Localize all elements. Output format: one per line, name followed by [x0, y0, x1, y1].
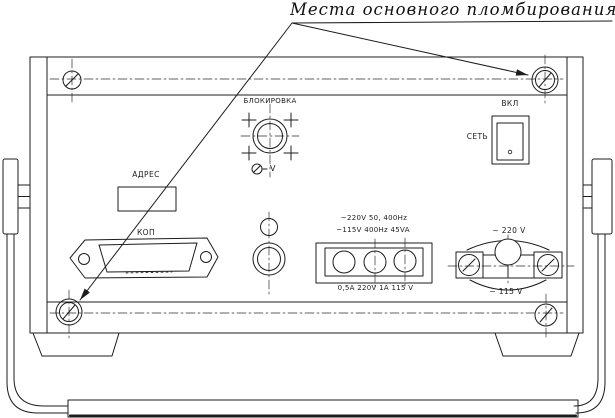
blocking-label: БЛОКИРОВКА	[240, 98, 300, 105]
gpib-connector	[70, 238, 218, 278]
voltage-selector	[456, 239, 562, 290]
power-connector	[316, 243, 432, 283]
instrument-feet	[33, 333, 579, 356]
address-window	[118, 187, 176, 211]
drawing-linework	[0, 0, 615, 418]
sealed-screw-top-right-icon	[532, 67, 558, 93]
gpib-label: КОП	[126, 229, 166, 237]
mains-label: СЕТЬ	[461, 133, 488, 141]
centerlines	[50, 55, 574, 340]
fuse-rating-label: 0,5A 220V 1A 115 V	[318, 285, 433, 292]
adjust-screw-icon	[252, 164, 267, 174]
seal-annotation-leaders	[80, 21, 612, 300]
selector-115v-label: ~ 115 V	[477, 288, 535, 296]
screw-top-left-icon	[63, 71, 81, 89]
address-label: АДРЕС	[116, 171, 176, 179]
power-rating-line1: ~220V 50, 400Hz	[316, 215, 432, 222]
rear-panel-drawing: Места основного пломбирования БЛОКИРОВКА…	[0, 0, 615, 418]
power-switch-label: ВКЛ	[495, 100, 525, 108]
power-rating-line2: ~115V 400Hz 45VA	[313, 227, 433, 234]
blocking-connector	[242, 113, 298, 160]
sealed-screw-bottom-left-icon	[56, 299, 82, 325]
seal-annotation-title: Места основного пломбирования	[290, 0, 614, 19]
adjust-label: V	[270, 165, 276, 173]
selector-220v-label: ~ 220 V	[479, 227, 539, 235]
power-switch	[492, 116, 529, 164]
